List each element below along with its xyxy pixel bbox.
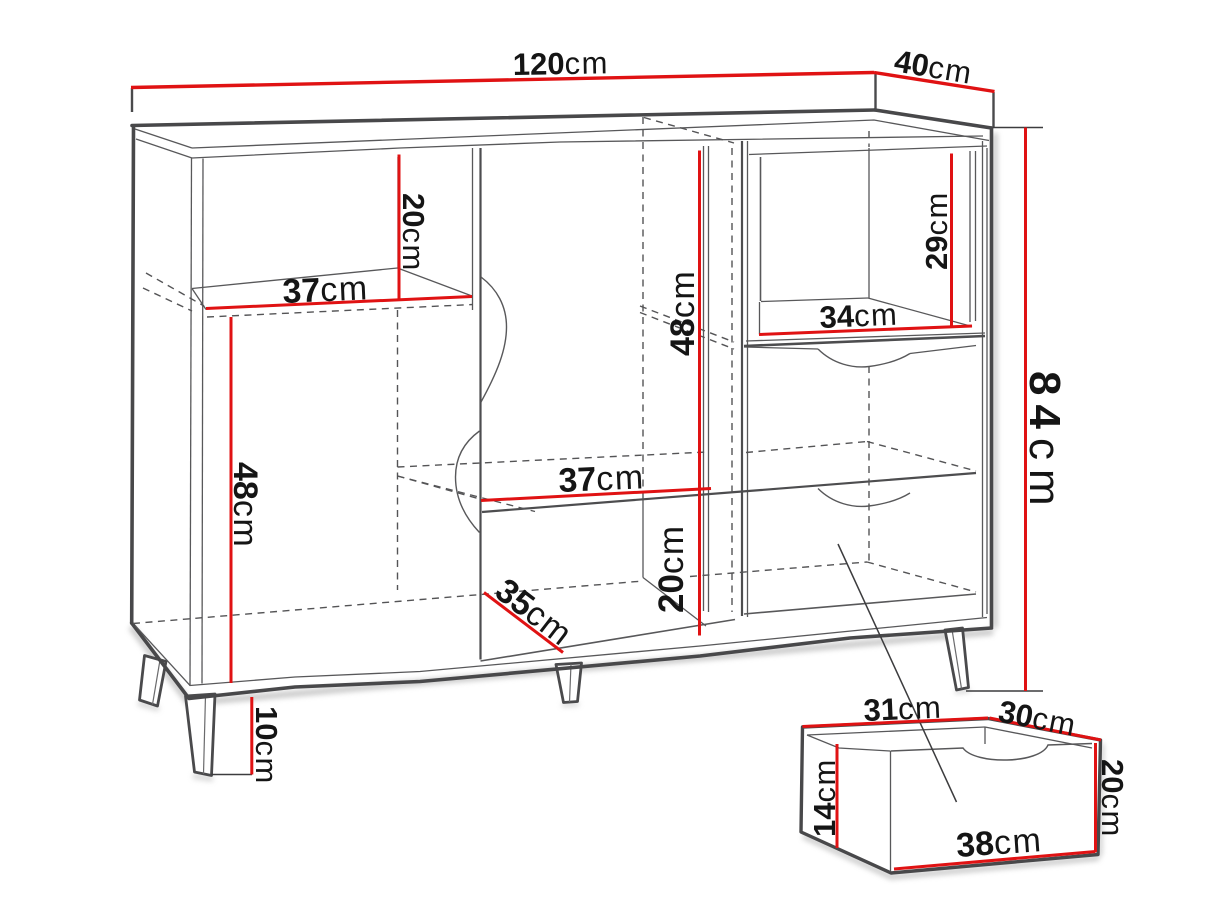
svg-text:120cm: 120cm xyxy=(513,45,610,82)
svg-text:31cm: 31cm xyxy=(863,690,943,728)
svg-text:38cm: 38cm xyxy=(955,821,1044,865)
svg-text:29cm: 29cm xyxy=(919,191,954,270)
svg-text:20cm: 20cm xyxy=(652,524,691,613)
svg-text:14cm: 14cm xyxy=(807,758,842,837)
svg-text:37cm: 37cm xyxy=(282,269,370,311)
svg-text:37cm: 37cm xyxy=(558,458,646,500)
svg-text:40cm: 40cm xyxy=(892,43,976,91)
svg-text:35cm: 35cm xyxy=(488,571,579,654)
svg-text:48cm: 48cm xyxy=(664,270,702,356)
svg-text:48cm: 48cm xyxy=(226,462,264,548)
svg-text:10cm: 10cm xyxy=(249,706,284,785)
svg-text:34cm: 34cm xyxy=(819,297,899,335)
svg-text:20cm: 20cm xyxy=(396,193,431,272)
svg-text:84cm: 84cm xyxy=(1020,371,1069,515)
svg-text:20cm: 20cm xyxy=(1095,759,1130,838)
